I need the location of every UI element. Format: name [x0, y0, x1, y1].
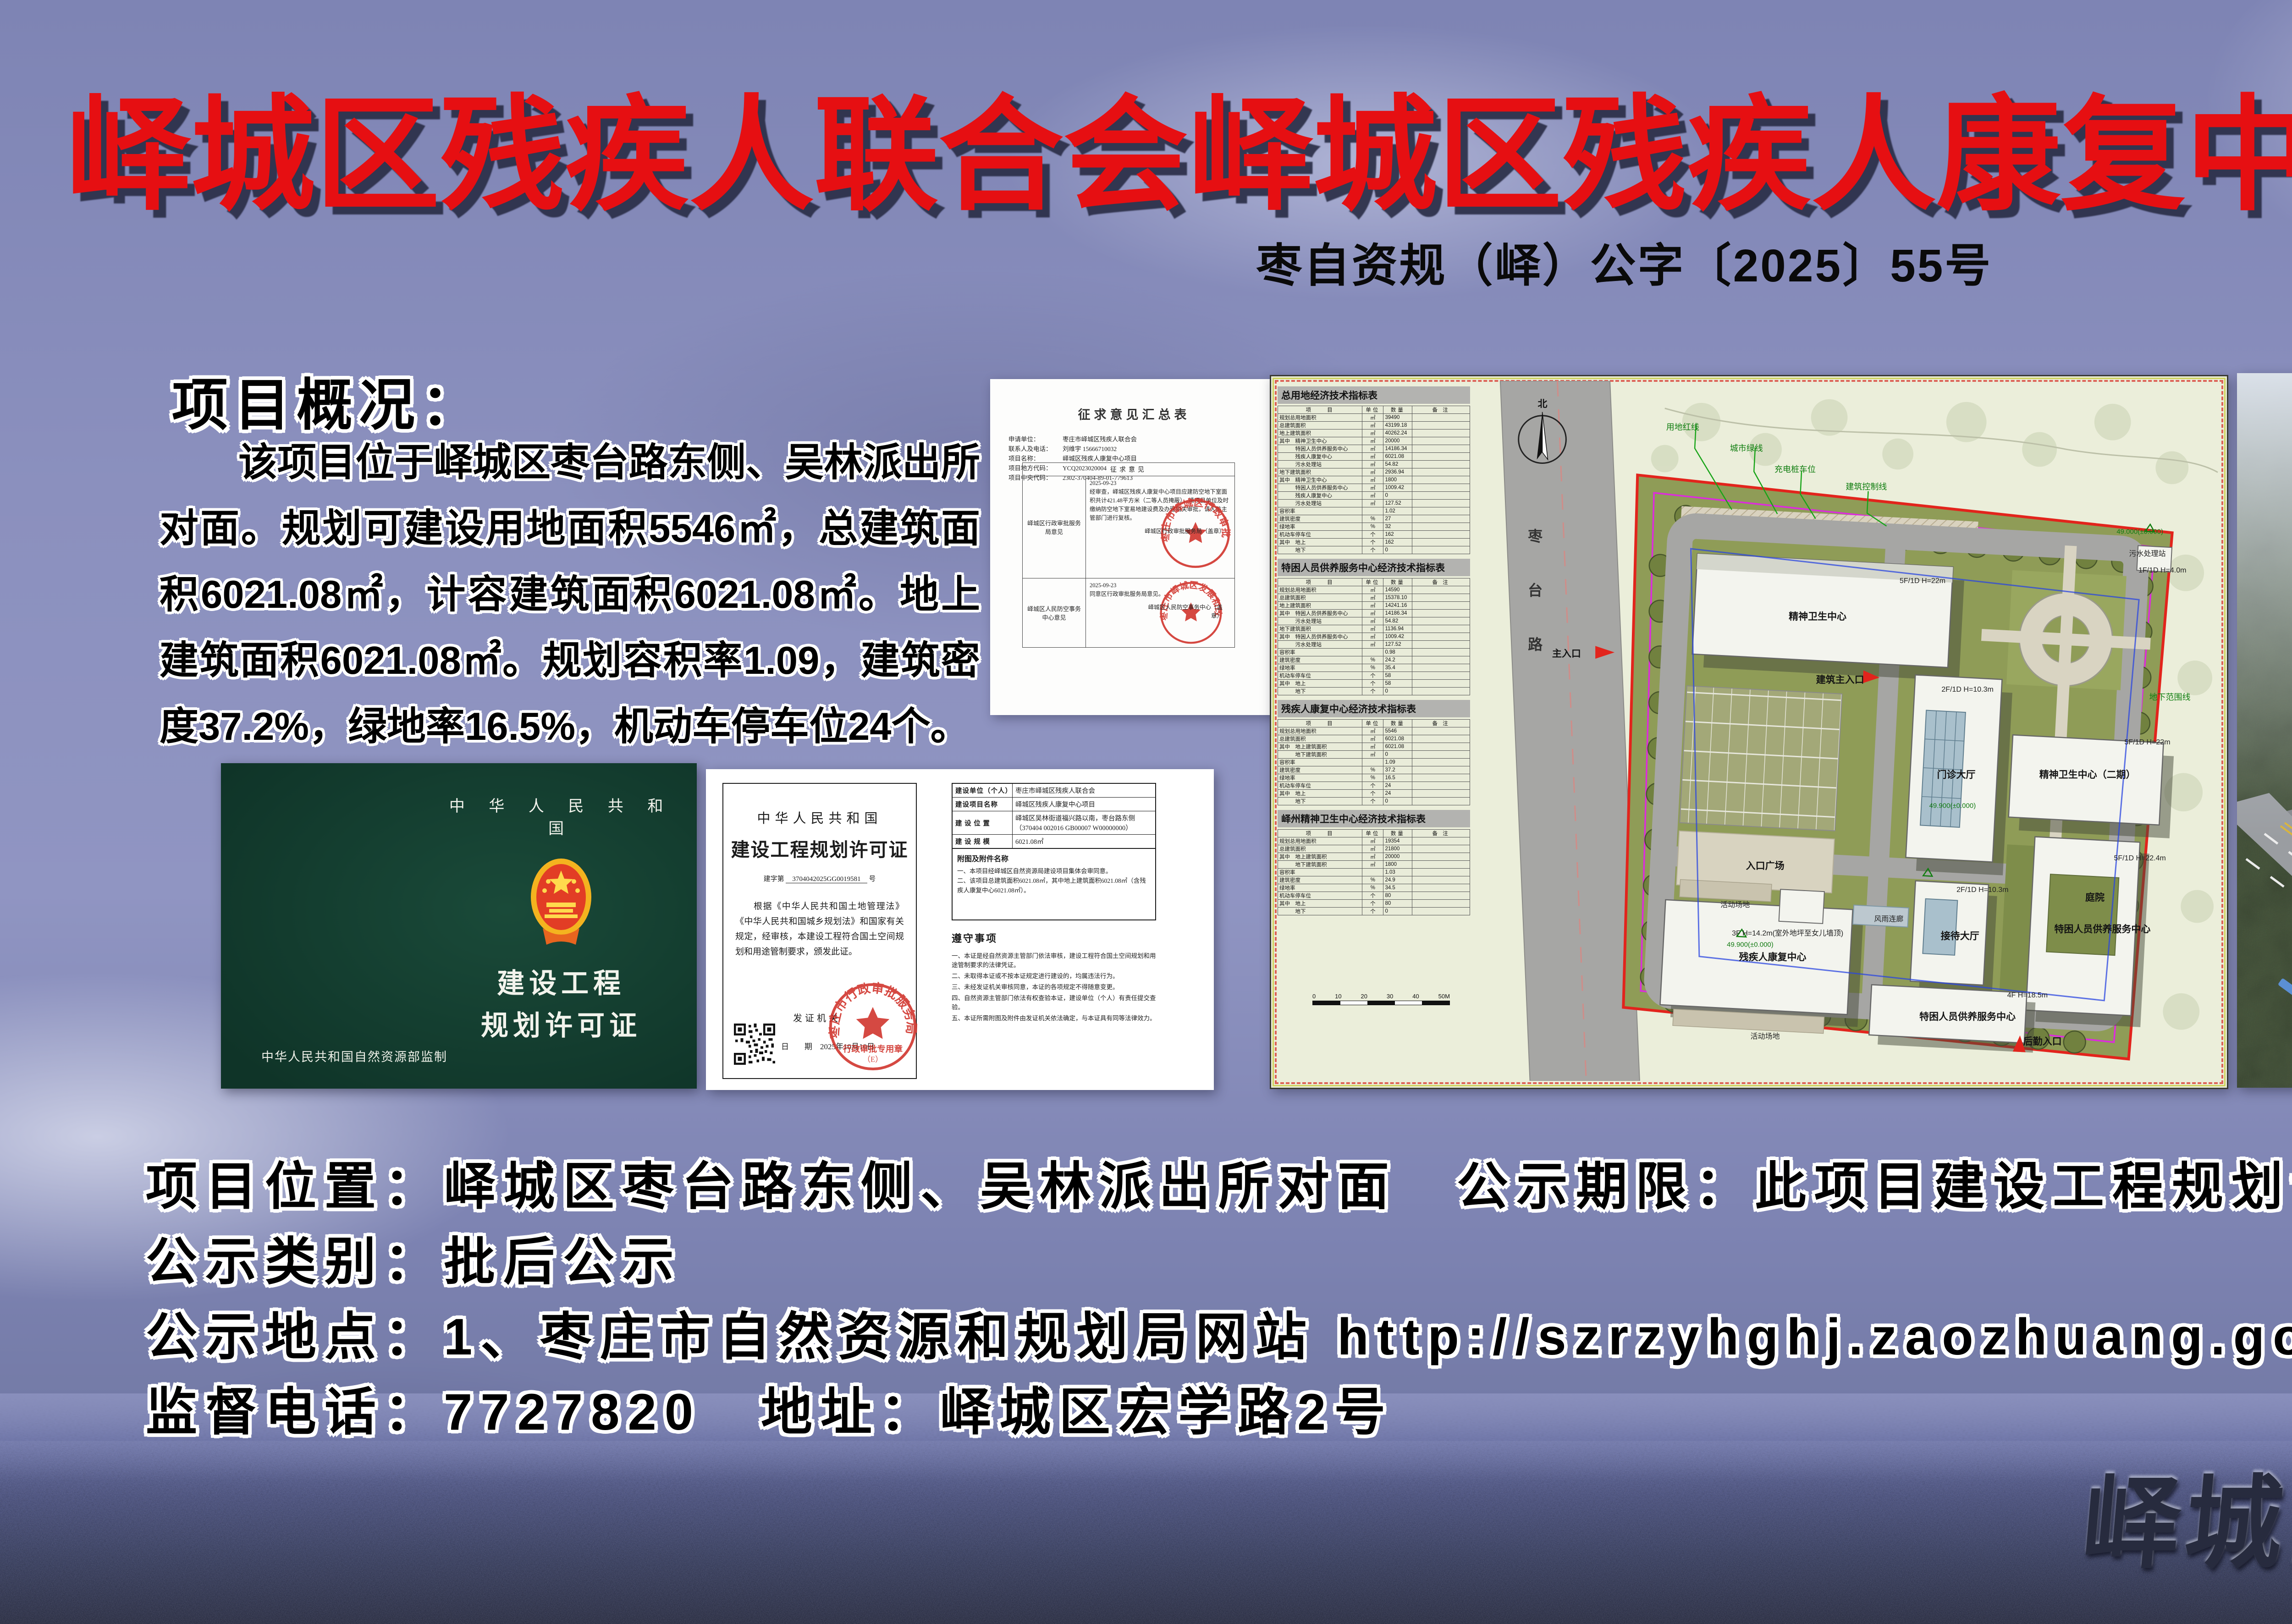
- opinion-org-2: 峄城区人民防空事务中心意见: [1023, 578, 1086, 648]
- col-unit: 单位: [1362, 406, 1383, 414]
- rules-heading: 遵守事项: [952, 930, 1156, 945]
- table-row: 地上建筑面积㎡40262.24: [1278, 429, 1470, 437]
- mental2-label: 精神卫生中心（二期）: [2039, 767, 2136, 781]
- table-row: 其中 特困人员供养服务中心㎡14186.34: [1278, 610, 1470, 617]
- attachment-item: 一、本项目经峄城区自然资源局建设项目集体会审同意。: [957, 866, 1151, 876]
- table-row: 地下个0: [1278, 908, 1470, 915]
- green-permit-cover: 中 华 人 民 共 和 国 建设工程 规划许可证 中华人民共和国自然资源部监制: [221, 763, 697, 1089]
- legend-red-label: 用地红线: [1666, 421, 1699, 433]
- table-row: 其中 地上个24: [1278, 790, 1470, 798]
- table-row: 其中 地上个58: [1278, 680, 1470, 688]
- scale-tick: 30: [1387, 993, 1393, 1000]
- rehab-spec: 3F H=14.2m(室外地坪至女儿墙顶): [1732, 927, 1843, 938]
- opinion-table-header: 征求意见: [1023, 463, 1235, 476]
- table-row: 规划总用地面积㎡39490: [1278, 414, 1470, 422]
- col-qty: 数量: [1383, 720, 1412, 727]
- tekun5-spec: 5F/1D H=22.4m: [2114, 854, 2165, 863]
- col-qty: 数量: [1383, 578, 1412, 586]
- col-note: 备 注: [1412, 578, 1470, 586]
- permit-info-row: 建设单位（个人）枣庄市峄城区残疾人联合会: [952, 783, 1156, 798]
- table-row: 特困人员供养服务中心㎡1009.42: [1278, 484, 1470, 492]
- footer-line-phone-address: 监督电话：7727820地址：峄城区宏学路2号: [146, 1371, 1394, 1445]
- green-cert-country: 中 华 人 民 共 和 国: [435, 793, 687, 838]
- col-note: 备 注: [1412, 720, 1470, 727]
- legend-underground-label: 地下范围线: [2149, 691, 2191, 703]
- rule-item: 一、本证是经自然资源主管部门依法审核，建设工程符合国土空间规划和用途管制要求的法…: [952, 952, 1156, 970]
- permit-attachments: 附图及附件名称 一、本项目经峄城区自然资源局建设项目集体会审同意。二、该项目总建…: [952, 849, 1156, 920]
- table-title: 总用地经济技术指标表: [1278, 386, 1470, 404]
- table-row: 特困人员供养服务中心㎡14186.34: [1278, 445, 1470, 453]
- col-qty: 数量: [1383, 830, 1412, 837]
- table-title: 特困人员供养服务中心经济技术指标表: [1278, 559, 1470, 576]
- col-item: 项 目: [1278, 720, 1362, 727]
- opinion-org-1: 峄城区行政审批服务局意见: [1023, 476, 1086, 578]
- table-row: 容积率0.98: [1278, 649, 1470, 656]
- reception-spec: 2F/1D H=10.3m: [1956, 886, 2008, 894]
- table-row: 规划总用地面积㎡19354: [1278, 837, 1470, 845]
- footer-line-venue: 公示地点：1、枣庄市自然资源和规划局网站 http://szrzyhghj.za…: [146, 1295, 2292, 1370]
- table-title: 峄州精神卫生中心经济技术指标表: [1278, 810, 1470, 827]
- red-stamp-icon: 枣庄市行政审批服务局 行政审批专用章 （E）: [828, 982, 918, 1072]
- table-row: 其中 地上建筑面积㎡20000: [1278, 853, 1470, 861]
- scale-bar: 01020304050M: [1312, 993, 1450, 1005]
- table-row: 地下建筑面积㎡1800: [1278, 861, 1470, 869]
- opinion-date-1: 2025-09-23: [1090, 479, 1231, 488]
- site-parcel: [1609, 421, 2190, 1061]
- plan-index-tables: 总用地经济技术指标表 项 目单位数量备 注 规划总用地面积㎡39490总建筑面积…: [1278, 382, 1470, 915]
- permit-left-page: 中华人民共和国 建设工程规划许可证 建字第 3704042025GG001958…: [722, 783, 917, 1079]
- footer-line-location: 项目位置：峄城区枣台路东侧、吴林派出所对面公示期限：此项目建设工程规划许可证生效…: [146, 1145, 2292, 1219]
- planning-permit-sheet: 中华人民共和国 建设工程规划许可证 建字第 3704042025GG001958…: [706, 769, 1214, 1090]
- table-row: 地下建筑面积㎡2936.94: [1278, 468, 1470, 476]
- rehab-label: 残疾人康复中心: [1739, 950, 1807, 963]
- table-row: 机动车停车位个58: [1278, 672, 1470, 680]
- elevation-label3: 49.000(±0.000): [2116, 528, 2163, 536]
- elevation-label2: 49.900(±0.000): [1727, 941, 1774, 949]
- opinion-sign-2: 峄城区人民防空事务中心（盖章）: [1145, 603, 1223, 621]
- entrance-plaza-label: 入口广场: [1746, 859, 1785, 872]
- tekun5-label: 特困人员供养服务中心: [2054, 922, 2150, 936]
- permit-info-row: 建 设 位 置峄城区吴林街道福兴路以南，枣台路东侧（370404 002016 …: [952, 811, 1156, 835]
- reception-label: 接待大厅: [1941, 929, 1979, 942]
- table-row: 地下个0: [1278, 688, 1470, 695]
- service-entrance-label: 后勤入口: [2023, 1034, 2062, 1048]
- rule-item: 四、自然资源主管部门依法有权查验本证，建设单位（个人）有责任提交查验。: [952, 994, 1156, 1012]
- table-row: 地下个0: [1278, 546, 1470, 554]
- permit-country: 中华人民共和国: [723, 808, 916, 827]
- north-label: 北: [1538, 396, 1548, 410]
- outpatient-label: 门诊大厅: [1937, 767, 1976, 781]
- aerial-rendering-image: [2237, 373, 2292, 1088]
- table-row: 其中 地上个162: [1278, 539, 1470, 546]
- table-row: 污水处理站㎡127.52: [1278, 500, 1470, 507]
- scale-tick: 0: [1312, 993, 1316, 1000]
- parking-area: [1680, 686, 1842, 831]
- col-item: 项 目: [1278, 406, 1362, 414]
- table-row: 绿地率%35.4: [1278, 664, 1470, 672]
- footer-line-category: 公示类别：批后公示: [146, 1220, 682, 1294]
- table-row: 总建筑面积㎡15378.10: [1278, 594, 1470, 602]
- scale-tick: 40: [1412, 993, 1419, 1000]
- courtyard-label: 庭院: [2085, 890, 2105, 904]
- tekun4-spec: 4F H=18.5m: [2007, 991, 2048, 1000]
- mental-center-spec: 5F/1D H=22m: [1900, 577, 1945, 585]
- building-entrance-label: 建筑主入口: [1816, 672, 1864, 686]
- scale-tick: 10: [1335, 993, 1341, 1000]
- table-row: 建筑密度%27: [1278, 515, 1470, 523]
- table-row: 容积率1.09: [1278, 759, 1470, 766]
- scale-bar-segments: [1312, 1001, 1450, 1005]
- table-row: 污水处理站㎡54.82: [1278, 461, 1470, 468]
- permit-info-row: 建 设 规 模6021.08㎡: [952, 835, 1156, 849]
- attachment-item: 二、该项目总建筑面积6021.08㎡，其中地上建筑面积6021.08㎡（含残疾人…: [957, 876, 1151, 895]
- legend-charge-label: 充电桩车位: [1774, 463, 1816, 475]
- table-row: 地下建筑面积㎡0: [1278, 751, 1470, 759]
- table-row: 建筑密度%24.2: [1278, 656, 1470, 664]
- table-row: 其中 精神卫生中心㎡20000: [1278, 437, 1470, 445]
- table-row: 规划总用地面积㎡14590: [1278, 586, 1470, 594]
- col-item: 项 目: [1278, 830, 1362, 837]
- road-zaotai: [1500, 381, 1640, 1081]
- permit-title: 建设工程规划许可证: [723, 834, 916, 862]
- table-row: 残疾人康复中心㎡6021.08: [1278, 453, 1470, 461]
- green-cert-footer: 中华人民共和国自然资源部监制: [261, 1047, 447, 1065]
- table-row: 污水处理站㎡54.82: [1278, 617, 1470, 625]
- poster: 峄城区残疾人联合会峄城区残疾人康复中心项目批后公示 枣自资规（峄）公字〔2025…: [0, 0, 2292, 1624]
- overview-heading: 项目概况：: [172, 360, 484, 441]
- main-entrance-label: 主入口: [1552, 646, 1581, 660]
- opinion-doc-title: 征求意见汇总表: [990, 405, 1278, 423]
- opinion-sign-1: 峄城区行政审批服务局（盖章）: [1145, 527, 1223, 536]
- activity-label2: 活动场地: [1751, 1030, 1780, 1041]
- table-row: 总建筑面积㎡43199.18: [1278, 422, 1470, 429]
- table-row: 总建筑面积㎡21800: [1278, 845, 1470, 853]
- rule-item: 二、未取得本证或不按本证规定进行建设的，均属违法行为。: [952, 972, 1156, 981]
- legend-green-label: 城市绿线: [1730, 442, 1763, 454]
- national-emblem-icon: [524, 855, 598, 947]
- table-title: 残疾人康复中心经济技术指标表: [1278, 700, 1470, 717]
- permit-info-table: 建设单位（个人）枣庄市峄城区残疾人联合会建设项目名称峄城区残疾人康复中心项目建 …: [952, 783, 1156, 849]
- table-row: 绿地率%34.5: [1278, 884, 1470, 892]
- table-row: 绿地率%16.5: [1278, 774, 1470, 782]
- table-row: 地下个0: [1278, 798, 1470, 805]
- plan-map-area: 北 枣台路 主入口 精神卫生中心 5F/1D H=22m 门诊大厅 2F/1D …: [1473, 381, 2222, 1083]
- table-row: 总建筑面积㎡6021.08: [1278, 735, 1470, 743]
- table-row: 机动车停车位个24: [1278, 782, 1470, 790]
- svg-text:（E）: （E）: [863, 1055, 883, 1063]
- permit-number: 建字第 3704042025GG0019581 号: [723, 874, 916, 883]
- table-row: 容积率1.02: [1278, 507, 1470, 515]
- mental2-spec: 5F/1D H=22m: [2124, 738, 2170, 747]
- col-qty: 数量: [1383, 406, 1412, 414]
- opinion-doc-field: 申请单位：枣庄市峄城区残疾人联合会: [1008, 435, 1278, 444]
- legend-ctrl-label: 建筑控制线: [1846, 480, 1887, 492]
- rule-item: 五、本证所需附图及附件由发证机关依法确定，与本证具有同等法律效力。: [952, 1014, 1156, 1023]
- table-row: 规划总用地面积㎡5546: [1278, 727, 1470, 735]
- issuer-watermark: 峄城区自然资源局监制: [2077, 1442, 2292, 1588]
- road-label: 枣台路: [1524, 528, 1545, 691]
- mental-center-label: 精神卫生中心: [1789, 609, 1846, 623]
- table-row: 其中 精神卫生中心㎡1800: [1278, 476, 1470, 484]
- rule-item: 三、未经发证机关审核同意，本证的各项规定不得随意变更。: [952, 983, 1156, 992]
- opinion-table: 征求意见 峄城区行政审批服务局意见 2025-09-23 经审查，峄城区残疾人康…: [1022, 462, 1235, 648]
- table-row: 机动车停车位个80: [1278, 892, 1470, 900]
- attachments-heading: 附图及附件名称: [957, 853, 1151, 864]
- aerial-rendering-graphic: [2237, 373, 2292, 1088]
- elevation-label: 49.900(±0.000): [1929, 802, 1976, 809]
- activity-label: 活动场地: [1720, 898, 1750, 909]
- scale-tick: 50M: [1438, 993, 1450, 1000]
- table-row: 绿地率%32: [1278, 523, 1470, 531]
- table-row: 地上建筑面积㎡14241.16: [1278, 602, 1470, 610]
- document-number: 枣自资规（峄）公字〔2025〕55号: [0, 228, 2292, 295]
- col-item: 项 目: [1278, 578, 1362, 586]
- green-cert-title: 建设工程 规划许可证: [435, 963, 687, 1047]
- building-mental-health-phase2: [2008, 735, 2174, 838]
- corridor-label: 风雨连廊: [1874, 913, 1903, 924]
- table-row: 建筑密度%37.2: [1278, 766, 1470, 774]
- table-row: 污水处理站㎡127.52: [1278, 641, 1470, 649]
- col-unit: 单位: [1362, 830, 1383, 837]
- qr-code-icon: [733, 1022, 777, 1066]
- site-plan-drawing: 总用地经济技术指标表 项 目单位数量备 注 规划总用地面积㎡39490总建筑面积…: [1270, 375, 2228, 1089]
- table-row: 残疾人康复中心㎡0: [1278, 492, 1470, 500]
- sewage-label: 污水处理站: [2129, 547, 2165, 558]
- table-row: 其中 地上建筑面积㎡6021.08: [1278, 743, 1470, 751]
- opinion-summary-document: 征求意见汇总表 申请单位：枣庄市峄城区残疾人联合会联系人及电话：刘维宇 1566…: [990, 379, 1278, 715]
- table-row: 机动车停车位个162: [1278, 531, 1470, 539]
- col-note: 备 注: [1412, 406, 1470, 414]
- outpatient-spec: 2F/1D H=10.3m: [1941, 686, 1993, 694]
- table-row: 其中 地上个80: [1278, 900, 1470, 908]
- table-row: 其中 特困人员供养服务中心㎡1009.42: [1278, 633, 1470, 641]
- overview-body: 该项目位于峄城区枣台路东侧、吴林派出所对面。规划可建设用地面积5546㎡，总建筑…: [160, 430, 980, 760]
- scale-tick: 20: [1361, 993, 1367, 1000]
- permit-info-row: 建设项目名称峄城区残疾人康复中心项目: [952, 798, 1156, 811]
- table-row: 建筑密度%24.9: [1278, 876, 1470, 884]
- col-unit: 单位: [1362, 720, 1383, 727]
- svg-text:行政审批专用章: 行政审批专用章: [843, 1044, 903, 1054]
- permit-body-text: 根据《中华人民共和国土地管理法》《中华人民共和国城乡规划法》和国家有关规定，经审…: [735, 899, 904, 959]
- table-row: 容积率1.03: [1278, 869, 1470, 876]
- sewage-spec: 1F/1D H=4.0m: [2138, 567, 2186, 575]
- poster-title: 峄城区残疾人联合会峄城区残疾人康复中心项目批后公示: [0, 54, 2292, 235]
- col-note: 备 注: [1412, 830, 1470, 837]
- tekun4-label: 特困人员供养服务中心: [1919, 1009, 2016, 1023]
- opinion-doc-field: 联系人及电话：刘维宇 15666710032: [1008, 444, 1278, 454]
- table-row: 地下建筑面积㎡1136.94: [1278, 625, 1470, 633]
- opinion-doc-field: 项目名称：峄城区残疾人康复中心项目: [1008, 454, 1278, 463]
- col-unit: 单位: [1362, 578, 1383, 586]
- permit-right-page: 建设单位（个人）枣庄市峄城区残疾人联合会建设项目名称峄城区残疾人康复中心项目建 …: [952, 783, 1156, 1077]
